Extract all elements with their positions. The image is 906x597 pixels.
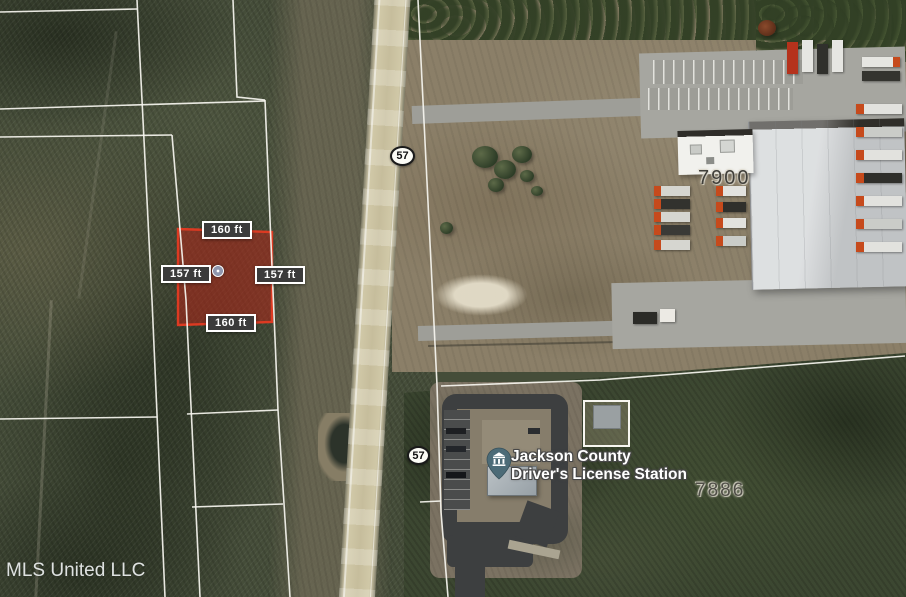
address-label-7886: 7886 xyxy=(695,480,745,502)
route-57-shield: 57 xyxy=(390,146,415,166)
dimension-label-bottom: 160 ft xyxy=(206,314,256,332)
address-label-7900: 7900 xyxy=(698,167,751,190)
parcel-boundary-lines xyxy=(0,0,906,597)
watermark: MLS United LLC xyxy=(6,560,145,582)
poi-label[interactable]: Jackson County Driver's License Station xyxy=(511,448,687,484)
poi-pin[interactable] xyxy=(486,447,512,480)
route-57-shield: 57 xyxy=(407,446,430,465)
government-building-pin-icon xyxy=(486,447,512,480)
satellite-map-canvas[interactable]: 160 ft 157 ft 157 ft 160 ft 57 57 7900 7… xyxy=(0,0,906,597)
dimension-label-top: 160 ft xyxy=(202,221,252,239)
parcel-center-marker-icon xyxy=(212,265,224,277)
dimension-label-left: 157 ft xyxy=(161,265,211,283)
dimension-label-right: 157 ft xyxy=(255,266,305,284)
poi-label-line2: Driver's License Station xyxy=(511,466,687,484)
poi-label-line1: Jackson County xyxy=(511,448,687,466)
